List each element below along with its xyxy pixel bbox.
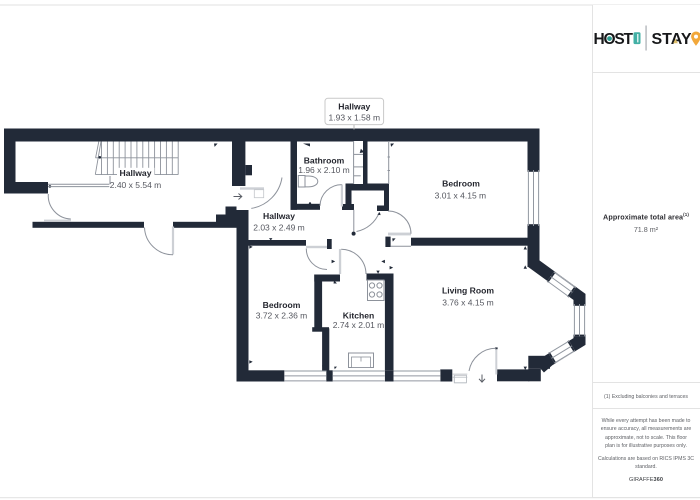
svg-text:Hallway: Hallway [119, 168, 151, 178]
svg-text:1.93 x 1.58 m: 1.93 x 1.58 m [329, 113, 381, 123]
svg-text:2.03 x 2.49 m: 2.03 x 2.49 m [253, 223, 305, 233]
svg-text:3.01 x 4.15 m: 3.01 x 4.15 m [435, 190, 487, 200]
svg-text:2.40 x 5.54 m: 2.40 x 5.54 m [110, 180, 162, 190]
svg-text:2.74 x 2.01 m: 2.74 x 2.01 m [333, 320, 385, 330]
svg-text:Living Room: Living Room [442, 286, 494, 296]
svg-text:STAY: STAY [652, 31, 692, 48]
svg-text:3.72 x 2.36 m: 3.72 x 2.36 m [256, 310, 308, 320]
svg-text:Bedroom: Bedroom [263, 300, 301, 310]
svg-text:3.76 x 4.15 m: 3.76 x 4.15 m [442, 297, 494, 307]
svg-text:Hallway: Hallway [263, 211, 295, 221]
svg-text:Bedroom: Bedroom [442, 179, 480, 189]
svg-text:1.96 x 2.10 m: 1.96 x 2.10 m [298, 165, 350, 175]
svg-text:Hallway: Hallway [338, 101, 370, 111]
svg-text:Kitchen: Kitchen [343, 310, 375, 320]
svg-text:HOST: HOST [594, 31, 634, 48]
